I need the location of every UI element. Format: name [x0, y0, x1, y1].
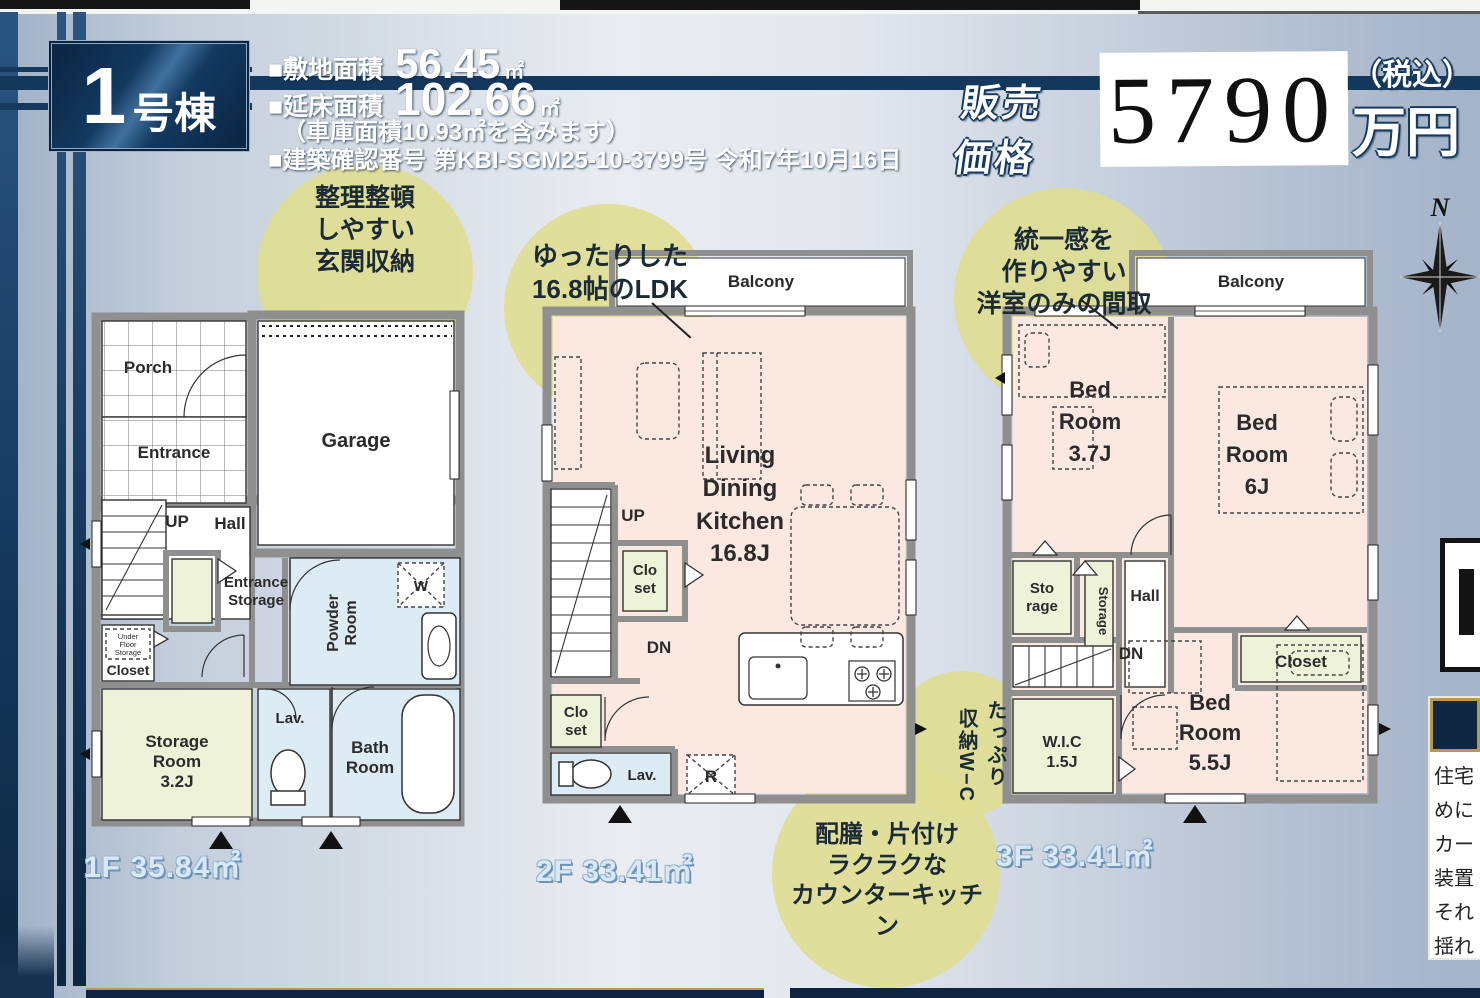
- label-closet-a1: Clo: [633, 562, 657, 579]
- label-storage-3: 3.2J: [160, 772, 193, 791]
- label-entrance-storage-2: Storage: [228, 592, 284, 609]
- bubble-line: ゆったりした: [512, 240, 708, 273]
- label-bed37-3: 3.7J: [1069, 441, 1112, 466]
- bubble-line: カウンターキッチン: [782, 881, 992, 942]
- label-storage1-a: Sto: [1030, 580, 1054, 597]
- bubble-line: 作りやすい: [964, 256, 1164, 288]
- scan-top-bar-mid: [560, 0, 1140, 10]
- bubble-line: 収納W−C: [955, 708, 977, 803]
- room-hall-3f: [1125, 561, 1165, 687]
- label-storage1-b: rage: [1026, 598, 1058, 615]
- floor-plan-2f: Balcony Living Dining Kitchen 16.8J UP D…: [535, 245, 935, 835]
- label-balcony-2f: Balcony: [728, 272, 795, 291]
- room-closet-2f-b: [551, 695, 601, 747]
- price-label: 販売 価格: [950, 72, 1047, 182]
- bubble-line: しやすい: [277, 214, 453, 246]
- label-bed6-2: Room: [1226, 442, 1288, 467]
- bottom-bar-left: [86, 988, 764, 998]
- door-marker: [154, 631, 168, 647]
- room-entrance-storage: [172, 559, 212, 623]
- label-bed55-2: Room: [1179, 720, 1241, 745]
- label-storage2: Storage: [1096, 587, 1111, 635]
- floor-plan-1f: Porch Entrance Garage UP Hall Entrance S…: [80, 295, 480, 885]
- floor-plan-3f: Balcony Bed Room 3.7J Bed Room 6J Bed Ro…: [995, 245, 1395, 835]
- label-powder-1: Powder: [325, 594, 342, 652]
- bubble-line: ラクラクな: [782, 851, 992, 882]
- area-label-1f: 1F 35.84㎡: [84, 842, 241, 886]
- bubble-line: 整理整頓: [277, 182, 453, 214]
- label-up-2f: UP: [621, 506, 645, 525]
- badge-number: 1: [82, 46, 127, 146]
- label-ufs-3: Storage: [115, 648, 141, 657]
- area-label-2f: 2F 33.41㎡: [536, 846, 693, 890]
- compass-north-label: N: [1430, 193, 1451, 222]
- bubble-ldk-text: ゆったりした 16.8帖のLDK: [512, 240, 708, 307]
- flyer-page: 1 号棟 ■敷地面積 56.45 ㎡ ■延床面積 102.66 ㎡ （車庫面積1…: [0, 0, 1480, 998]
- label-entrance: Entrance: [138, 443, 211, 462]
- label-balcony-3f: Balcony: [1218, 272, 1285, 291]
- compass-highlight: [1400, 222, 1480, 332]
- bubble-line: 配膳・片付け: [782, 820, 992, 851]
- price-value: 5790: [1108, 53, 1341, 166]
- bubble-line: たっぷり: [984, 700, 1006, 788]
- bubble-line: 洋室のみの間取: [964, 288, 1164, 320]
- bubble-entrance-storage-text: 整理整頓 しやすい 玄関収納: [277, 182, 453, 278]
- label-bed55-3: 5.5J: [1189, 750, 1232, 775]
- label-bath-1: Bath: [351, 738, 389, 757]
- note-line: それ: [1434, 896, 1480, 930]
- note-line: 揺れ: [1434, 930, 1480, 964]
- label-hall-3f: Hall: [1130, 588, 1159, 605]
- note-panel-body: 住宅 めに カー 装置 それ 揺れ: [1434, 760, 1480, 964]
- bubble-wic-text: たっぷり 収納W−C: [952, 700, 1010, 810]
- label-storage-1: Storage: [145, 732, 208, 751]
- label-fridge: R: [705, 767, 717, 786]
- label-ldk-4: 16.8J: [710, 540, 770, 567]
- label-closet-b2: set: [565, 722, 587, 739]
- toilet-icon: [571, 760, 611, 788]
- price-sticker: 5790: [1100, 51, 1349, 167]
- left-stripe-wide: [0, 12, 18, 986]
- price-unit: 万円: [1352, 88, 1460, 167]
- label-washer: W: [414, 578, 429, 595]
- label-hall: Hall: [214, 514, 245, 533]
- label-lav-2f: Lav.: [628, 767, 657, 784]
- bubble-line: 統一感を: [964, 224, 1164, 256]
- cropped-note-panel: 住宅 めに カー 装置 それ 揺れ: [1430, 698, 1480, 958]
- note-panel-header: [1430, 698, 1480, 752]
- label-ldk-2: Dining: [703, 475, 778, 502]
- label-wic-2: 1.5J: [1046, 754, 1077, 771]
- label-wic-1: W.I.C: [1042, 734, 1082, 751]
- note-line: 住宅: [1434, 760, 1480, 794]
- label-powder-2: Room: [343, 600, 360, 645]
- label-porch: Porch: [124, 358, 172, 377]
- toilet-icon: [271, 750, 305, 796]
- note-line: 装置: [1434, 862, 1480, 896]
- label-ldk-1: Living: [705, 442, 776, 469]
- washbasin-icon: [422, 613, 456, 679]
- note-line: めに: [1434, 794, 1480, 828]
- label-garage: Garage: [322, 430, 391, 452]
- badge-suffix: 号棟: [132, 80, 216, 141]
- left-stripe-thin-1: [57, 12, 66, 986]
- scan-top-line-right: [1138, 11, 1480, 14]
- bottom-bar-right: [790, 988, 1480, 998]
- label-closet-3f: Closet: [1275, 652, 1327, 671]
- label-up: UP: [165, 512, 189, 531]
- label-dn-3f: DN: [1119, 644, 1144, 663]
- bubble-line: 16.8帖のLDK: [512, 273, 708, 306]
- bubble-counter-kitchen-text: 配膳・片付け ラクラクな カウンターキッチン: [782, 820, 992, 943]
- note-line: カー: [1434, 828, 1480, 862]
- building-permit: ■建築確認番号 第KBI-SGM25-10-3799号 令和7年10月16日: [268, 140, 901, 175]
- compass-rose: N: [1395, 192, 1480, 352]
- cropped-white-box: [1440, 538, 1480, 672]
- label-bath-2: Room: [346, 758, 394, 777]
- building-number-badge: 1 号棟: [48, 40, 250, 152]
- label-ldk-3: Kitchen: [696, 508, 784, 535]
- bathtub-icon: [402, 695, 454, 813]
- bubble-western-rooms-text: 統一感を 作りやすい 洋室のみの間取: [964, 224, 1164, 320]
- label-bed55-1: Bed: [1189, 690, 1231, 715]
- label-bed6-1: Bed: [1236, 410, 1278, 435]
- label-dn-2f: DN: [647, 638, 672, 657]
- label-closet-a2: set: [634, 580, 656, 597]
- label-bed6-3: 6J: [1245, 474, 1269, 499]
- label-closet-b1: Clo: [564, 704, 588, 721]
- scan-top-bar-left: [0, 0, 250, 9]
- label-lav: Lav.: [276, 710, 305, 727]
- cropped-glyph: [1459, 569, 1474, 635]
- bottom-left-shade: [0, 926, 54, 998]
- label-entrance-storage-1: Entrance: [224, 574, 288, 591]
- area-label-3f: 3F 33.41㎡: [996, 831, 1153, 875]
- label-bed37-2: Room: [1059, 409, 1121, 434]
- label-ufs-closet: Closet: [107, 662, 150, 678]
- price-label-line2: 価格: [950, 127, 1040, 182]
- price-label-line1: 販売: [958, 72, 1048, 127]
- label-bed37-1: Bed: [1069, 377, 1111, 402]
- bubble-line: 玄関収納: [277, 246, 453, 278]
- label-storage-2: Room: [153, 752, 201, 771]
